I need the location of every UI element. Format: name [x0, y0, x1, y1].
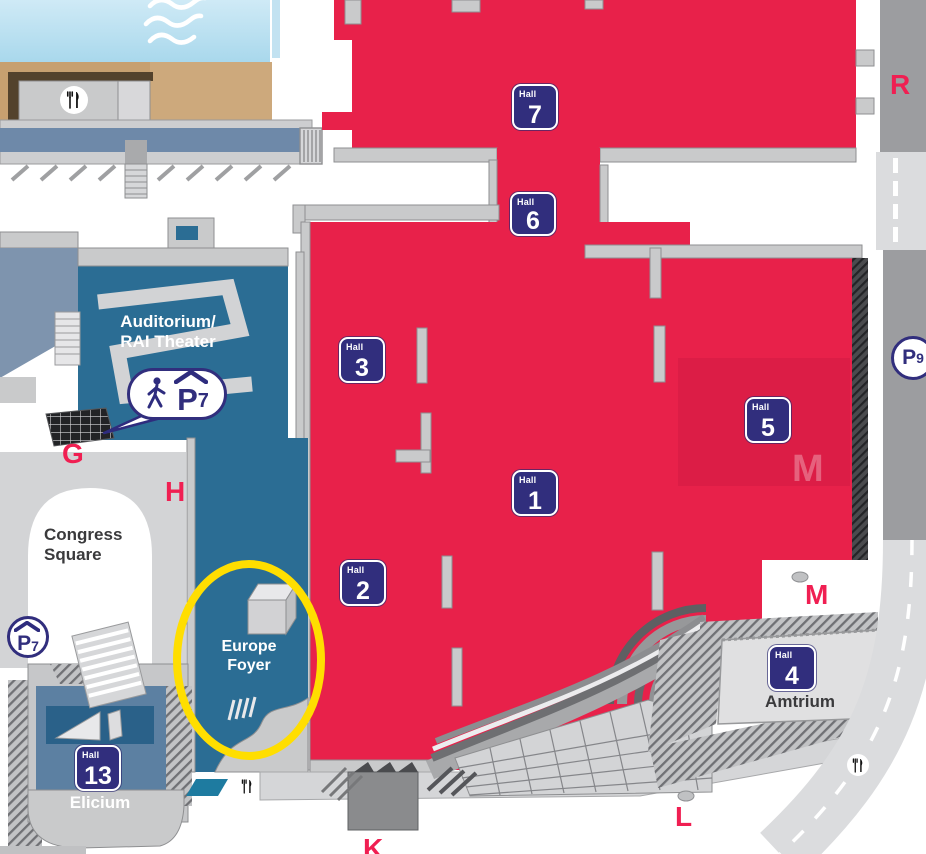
entrance-g-label: G [62, 440, 84, 468]
hall-6-badge: Hall6 [510, 192, 556, 236]
entrance-k-label: K [363, 835, 383, 854]
covered-parking-icon: P7 [177, 374, 209, 415]
europe-foyer-label: EuropeFoyer [210, 638, 288, 676]
restaurant-icon [847, 754, 869, 776]
restaurant-icon [236, 775, 258, 797]
hall-13-badge: Hall13 [75, 745, 121, 791]
elicium-label: Elicium [58, 793, 142, 813]
hall-7-badge: Hall7 [512, 84, 558, 130]
hall5-east-wall [852, 258, 868, 560]
auditorium-label: Auditorium/RAI Theater [88, 312, 248, 352]
restaurant-icon [60, 86, 88, 114]
foyer-cube [248, 584, 296, 634]
venue-map: Hall7 Hall6 Hall3 Hall1 Hall2 Hall5 Hall… [0, 0, 926, 854]
road-east [883, 250, 926, 546]
hall-5-badge: Hall5 [745, 397, 791, 443]
entrance-h-label: H [165, 478, 185, 506]
hall-2-badge: Hall2 [340, 560, 386, 606]
walking-person-icon [145, 376, 169, 412]
road-crossing [876, 152, 926, 250]
p7-parking-bubble: P7 [127, 368, 227, 420]
amtrium-label: Amtrium [745, 692, 855, 712]
entrance-l-label: L [675, 803, 692, 831]
congress-square-label: CongressSquare [44, 525, 164, 565]
walkway-bridge [0, 120, 322, 198]
hall5-m-watermark: M [792, 448, 824, 491]
entrance-r-label: R [890, 71, 910, 99]
europe-foyer [187, 438, 308, 772]
entrance-m-label: M [805, 581, 828, 609]
hall-4-badge: Hall4 [768, 645, 816, 691]
p7-parking-circle: P7 [7, 616, 49, 658]
covered-parking-icon: P7 [17, 623, 39, 655]
hall-3-badge: Hall3 [339, 337, 385, 383]
stairs [125, 164, 147, 198]
hall-1-badge: Hall1 [512, 470, 558, 516]
